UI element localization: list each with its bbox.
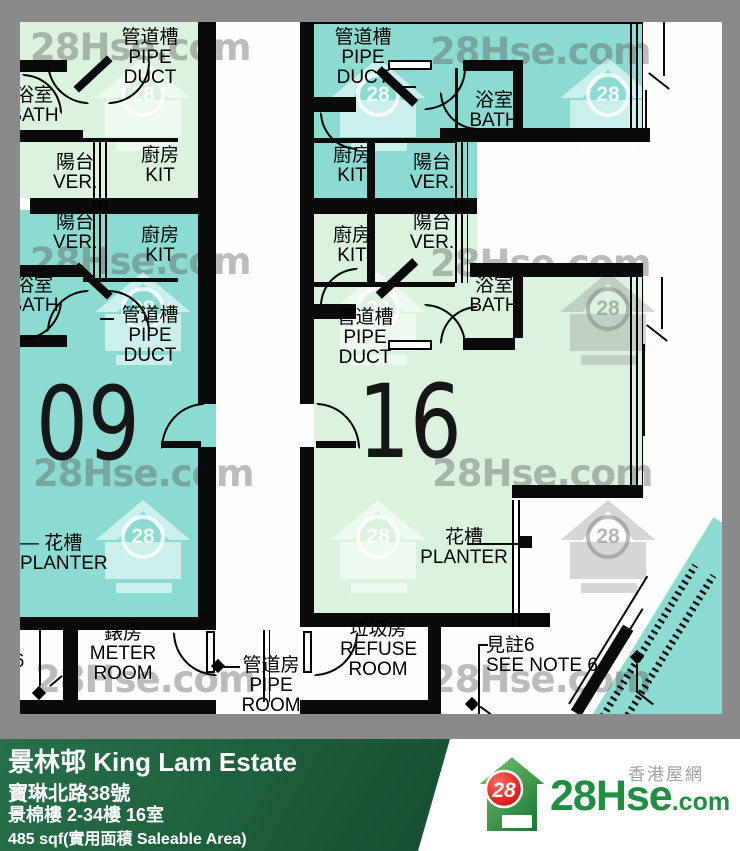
room-label-pipe-room: 管道房 PIPE ROOM (236, 656, 306, 714)
wall (463, 60, 515, 71)
room-label-meter-room: 錶房 METER ROOM (78, 624, 168, 683)
window-lines (630, 277, 643, 485)
planter-arrow-square (520, 536, 532, 548)
note6-leader (39, 630, 41, 686)
see-note-label: 見註6 SEE NOTE 6 (486, 636, 616, 676)
site-logo-house-icon: 28 (476, 755, 548, 838)
block-floor-flat: 景棉樓 2-34樓 16室 (8, 801, 164, 827)
screenshot-canvas: 28Hse.com 28Hse.com 28Hse.com 28Hse.com … (0, 0, 740, 851)
wall (198, 447, 216, 630)
wall (300, 700, 441, 714)
room-label-bath: 浴室 BATH (20, 276, 66, 316)
wall (20, 130, 83, 142)
room-label-verandah: 陽台 VER. (53, 153, 97, 193)
site-name-chinese: 香港屋網 (628, 760, 704, 785)
wall (512, 485, 643, 498)
see-note-dash (480, 706, 499, 714)
room-label-refuse-room: 垃圾房 REFUSE ROOM (340, 620, 416, 679)
planter-outline (645, 90, 647, 142)
window-lines (455, 141, 468, 211)
room-label-bath: 浴室 BATH (20, 86, 66, 126)
room-label-verandah: 陽台 VER. (408, 213, 456, 253)
wall (300, 447, 314, 627)
wall (20, 700, 216, 714)
site-logo-badge: 28 (491, 779, 516, 802)
room-label-kitchen: 廚房 KIT (136, 146, 184, 186)
room-label-pipe-duct: 管道槽 PIPE DUCT (115, 28, 185, 87)
note-ref-label: 6 (20, 652, 30, 672)
planter-outline (661, 277, 663, 329)
wall (314, 97, 356, 112)
room-label-planter: 花槽 PLANTER (408, 528, 520, 568)
window-lines (630, 24, 643, 128)
footer-banner: 景林邨 King Lam Estate 寶琳北路38號 景棉樓 2-34樓 16… (0, 739, 740, 851)
room-label-verandah: 陽台 VER. (53, 213, 97, 253)
window-lines (455, 210, 468, 283)
estate-name: 景林邨 King Lam Estate (8, 742, 297, 779)
leader-line (400, 86, 416, 88)
planter-outline (663, 22, 665, 76)
room-label-kitchen: 廚房 KIT (136, 226, 184, 266)
room-label-bath: 浴室 BATH (461, 276, 527, 316)
unit-number-16: 16 (358, 372, 462, 474)
room-label-planter: — 花槽 PLANTER (20, 534, 140, 574)
room-label-kitchen: 廚房 KIT (328, 146, 376, 186)
room-label-bath: 浴室 BATH (461, 91, 527, 131)
room-label-kitchen: 廚房 KIT (328, 226, 376, 266)
planter-outline (643, 344, 645, 436)
room-label-pipe-duct: 管道槽 PIPE DUCT (330, 308, 400, 367)
unit-number-09: 09 (36, 374, 140, 476)
room-label-pipe-duct: 管道槽 PIPE DUCT (328, 28, 398, 87)
wall (300, 22, 643, 24)
room-label-verandah: 陽台 VER. (408, 153, 456, 193)
floor-plan: 28Hse.com 28Hse.com 28Hse.com 28Hse.com … (20, 22, 722, 714)
saleable-area: 485 sqf(實用面積 Saleable Area) (8, 825, 247, 849)
room-label-pipe-duct: 管道槽 PIPE DUCT (115, 306, 185, 365)
